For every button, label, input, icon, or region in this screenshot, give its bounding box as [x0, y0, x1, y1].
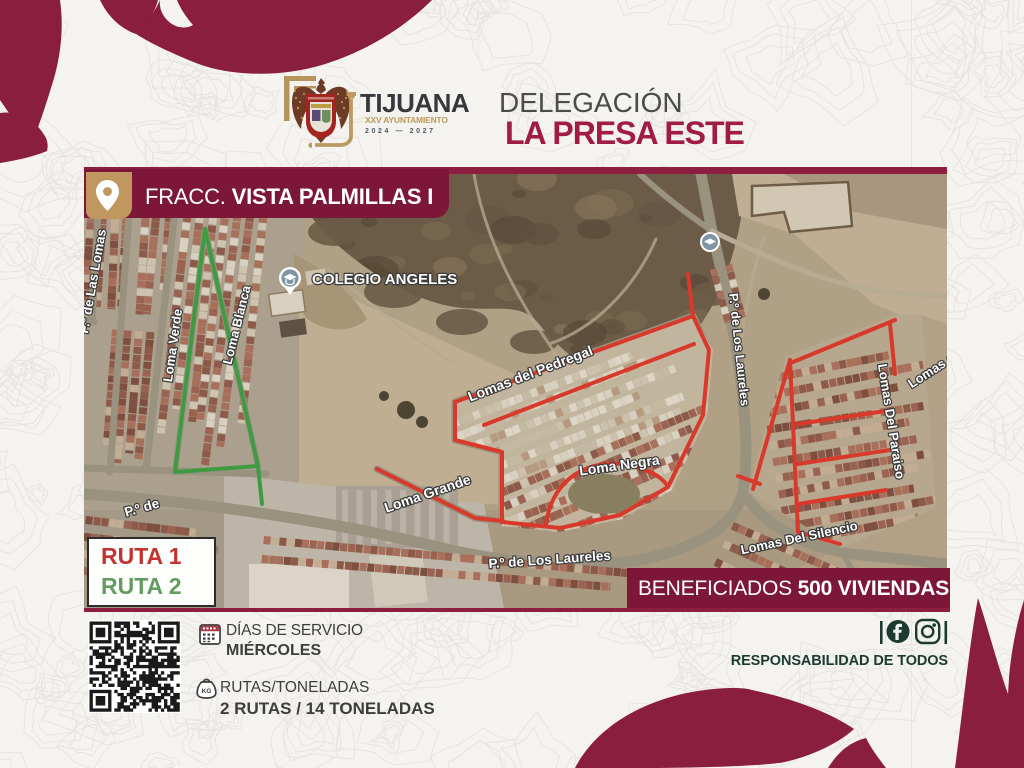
svg-text:COLEGIO ANGELES: COLEGIO ANGELES [312, 271, 457, 288]
svg-text:KG: KG [202, 688, 212, 695]
